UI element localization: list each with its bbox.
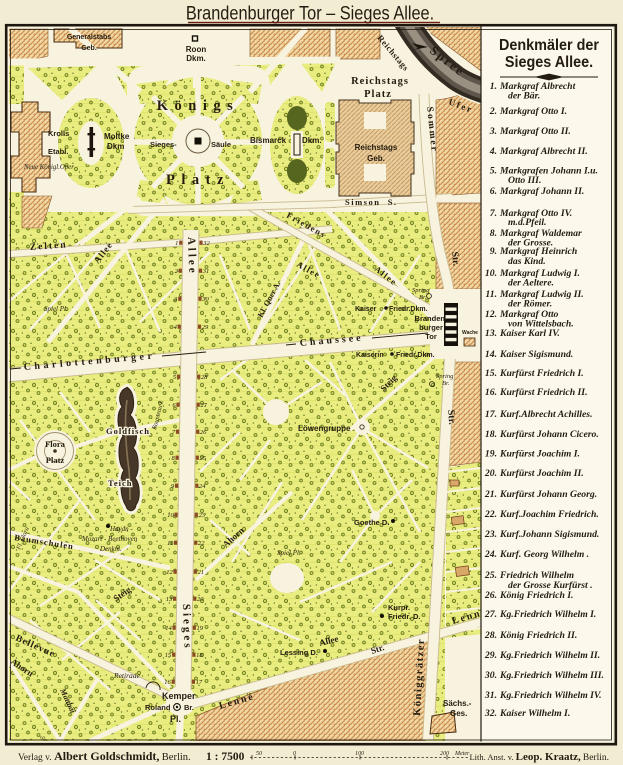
svg-text:Br.: Br. <box>184 703 194 712</box>
svg-text:22: 22 <box>198 540 205 547</box>
svg-text:15.: 15. <box>485 368 497 379</box>
svg-text:1 : 7500: 1 : 7500 <box>206 751 245 763</box>
svg-text:Moltke: Moltke <box>104 132 130 141</box>
svg-text:16.: 16. <box>485 387 497 398</box>
svg-text:11: 11 <box>167 540 173 547</box>
svg-text:23.: 23. <box>484 529 497 540</box>
svg-text:12.: 12. <box>485 309 497 320</box>
svg-text:Sieges Allee.: Sieges Allee. <box>505 54 593 72</box>
svg-text:Kurf.Joachim Friedrich.: Kurf.Joachim Friedrich. <box>499 509 599 520</box>
svg-text:Platz: Platz <box>166 172 230 188</box>
svg-text:27: 27 <box>200 402 207 409</box>
svg-text:der Römer.: der Römer. <box>508 299 552 310</box>
svg-text:7.: 7. <box>490 208 497 219</box>
svg-text:Lessing D.: Lessing D. <box>280 648 318 657</box>
svg-text:Friedr.Dkm.: Friedr.Dkm. <box>396 352 435 359</box>
svg-text:das Kind.: das Kind. <box>508 256 546 267</box>
svg-text:6.: 6. <box>490 186 497 197</box>
svg-text:16: 16 <box>164 679 171 686</box>
svg-text:Königs: Königs <box>157 98 240 114</box>
svg-text:4.: 4. <box>489 146 497 157</box>
svg-text:17.: 17. <box>485 409 497 420</box>
svg-text:26: 26 <box>200 429 207 436</box>
svg-text:15: 15 <box>165 652 172 659</box>
svg-text:Krolls: Krolls <box>48 129 69 138</box>
svg-text:Geb.: Geb. <box>81 45 97 52</box>
svg-text:König Friedrich II.: König Friedrich II. <box>499 630 577 641</box>
svg-text:Markgraf Johann II.: Markgraf Johann II. <box>499 186 584 197</box>
svg-text:Sieges: Sieges <box>180 604 194 651</box>
svg-text:29.: 29. <box>484 650 497 661</box>
svg-text:Spiel Pl.: Spiel Pl. <box>44 305 68 313</box>
svg-text:Brandenburger Tor – Sieges All: Brandenburger Tor – Sieges Allee. <box>186 2 434 23</box>
svg-text:Reichstags: Reichstags <box>355 143 398 152</box>
svg-text:32.: 32. <box>484 708 497 719</box>
svg-text:Otto III.: Otto III. <box>508 175 541 186</box>
svg-text:Friedr. D.: Friedr. D. <box>388 612 421 621</box>
svg-text:5.: 5. <box>490 166 497 177</box>
svg-text:1: 1 <box>175 240 178 247</box>
svg-text:28.: 28. <box>484 630 497 641</box>
svg-text:8.: 8. <box>490 228 497 239</box>
svg-text:31.: 31. <box>484 690 497 701</box>
svg-text:Str.: Str. <box>445 409 457 425</box>
svg-text:Kurfürst Johann Cicero.: Kurfürst Johann Cicero. <box>499 429 599 440</box>
svg-text:Kemper: Kemper <box>162 691 196 701</box>
svg-text:Kurpr.: Kurpr. <box>388 603 410 612</box>
svg-text:Goethe D.: Goethe D. <box>354 518 389 527</box>
svg-text:Br.: Br. <box>442 380 450 387</box>
svg-text:Goldfisch: Goldfisch <box>106 426 150 436</box>
svg-text:25.: 25. <box>484 570 497 581</box>
svg-text:Roland: Roland <box>145 703 171 712</box>
svg-text:Sieges-: Sieges- <box>150 140 177 149</box>
svg-text:Kaiser Karl IV.: Kaiser Karl IV. <box>499 328 560 339</box>
svg-text:Roon: Roon <box>186 45 207 54</box>
svg-text:Retirade: Retirade <box>113 671 140 680</box>
svg-text:Neue Königl.Oper: Neue Königl.Oper <box>23 164 74 171</box>
svg-text:Kaiser: Kaiser <box>355 306 377 313</box>
svg-text:12: 12 <box>166 569 173 576</box>
svg-text:Kurf.Albrecht Achilles.: Kurf.Albrecht Achilles. <box>499 409 593 420</box>
svg-text:18.: 18. <box>485 429 497 440</box>
svg-text:Lith. Anst. v. Leop. Kraatz, B: Lith. Anst. v. Leop. Kraatz, Berlin. <box>469 751 609 763</box>
svg-text:Platz: Platz <box>364 89 392 100</box>
svg-text:m.d.Pfeil.: m.d.Pfeil. <box>508 217 546 228</box>
svg-text:21.: 21. <box>484 489 497 500</box>
svg-text:Kurfürst Joachim II.: Kurfürst Joachim II. <box>499 468 584 479</box>
svg-text:11.: 11. <box>485 289 497 300</box>
svg-text:Markgraf Otto II.: Markgraf Otto II. <box>499 126 571 137</box>
svg-text:24.: 24. <box>484 549 497 560</box>
svg-text:26.: 26. <box>484 590 497 601</box>
svg-text:50: 50 <box>256 751 262 757</box>
svg-text:Meter: Meter <box>454 751 470 757</box>
svg-text:Str.: Str. <box>449 251 460 266</box>
svg-text:17: 17 <box>196 679 203 686</box>
svg-text:Kg.Friedrich Wilhelm II.: Kg.Friedrich Wilhelm II. <box>499 650 600 661</box>
svg-text:Mozart - Beethoven: Mozart - Beethoven <box>81 535 138 543</box>
svg-text:9.: 9. <box>490 246 497 257</box>
svg-text:31: 31 <box>202 268 210 275</box>
svg-text:Geb.: Geb. <box>367 154 385 163</box>
svg-text:32: 32 <box>202 240 210 247</box>
svg-text:20: 20 <box>197 596 204 603</box>
svg-text:13: 13 <box>166 596 173 603</box>
svg-text:10: 10 <box>167 512 174 519</box>
svg-text:23: 23 <box>199 512 206 519</box>
svg-text:3: 3 <box>173 296 178 303</box>
svg-text:2.: 2. <box>489 106 497 117</box>
svg-text:28: 28 <box>201 374 208 381</box>
svg-text:Denkm.: Denkm. <box>99 545 122 553</box>
svg-text:18: 18 <box>196 652 203 659</box>
svg-text:Pl.: Pl. <box>170 714 181 724</box>
svg-text:Dkm.: Dkm. <box>302 136 322 145</box>
svg-text:Markgraf Otto I.: Markgraf Otto I. <box>499 106 567 117</box>
svg-text:Platz: Platz <box>46 455 65 465</box>
svg-text:19.: 19. <box>485 449 497 460</box>
svg-text:13.: 13. <box>485 328 497 339</box>
svg-text:Flora: Flora <box>45 439 66 449</box>
svg-text:der Bär.: der Bär. <box>508 91 540 102</box>
svg-text:Kaiser Sigismund.: Kaiser Sigismund. <box>499 349 573 360</box>
svg-text:100: 100 <box>355 751 364 757</box>
svg-text:19: 19 <box>197 625 204 632</box>
svg-text:Tor: Tor <box>425 332 437 341</box>
svg-text:21: 21 <box>198 569 205 576</box>
svg-text:27.: 27. <box>484 609 497 620</box>
svg-text:Dkm.: Dkm. <box>186 54 206 63</box>
svg-text:Denkmäler der: Denkmäler der <box>499 37 599 55</box>
svg-text:Br.: Br. <box>419 294 427 301</box>
svg-text:24: 24 <box>199 483 206 490</box>
svg-text:Branden-: Branden- <box>415 314 448 323</box>
svg-text:Kurf. Georg Wilhelm .: Kurf. Georg Wilhelm . <box>499 549 589 560</box>
svg-text:Spiel Pl.: Spiel Pl. <box>277 549 301 557</box>
svg-text:Ges.: Ges. <box>450 709 467 718</box>
svg-text:1.: 1. <box>490 81 497 92</box>
svg-text:Kurf.Johann Sigismund.: Kurf.Johann Sigismund. <box>499 529 599 540</box>
svg-text:0: 0 <box>293 751 296 757</box>
svg-text:20.: 20. <box>484 468 497 479</box>
svg-text:Teich: Teich <box>108 478 133 488</box>
svg-text:Bismarck: Bismarck <box>250 136 287 145</box>
svg-text:Friedr.Dkm.: Friedr.Dkm. <box>389 306 428 313</box>
svg-text:Allee: Allee <box>185 237 198 276</box>
svg-text:König Friedrich I.: König Friedrich I. <box>499 590 573 601</box>
svg-text:Kurfürst Friedrich II.: Kurfürst Friedrich II. <box>499 387 588 398</box>
svg-text:der Aeltere.: der Aeltere. <box>508 278 554 289</box>
svg-text:Haydn -: Haydn - <box>109 525 133 533</box>
svg-text:14.: 14. <box>485 349 497 360</box>
svg-text:Kg.Friedrich Wilhelm I.: Kg.Friedrich Wilhelm I. <box>499 609 596 620</box>
svg-text:3.: 3. <box>489 126 497 137</box>
svg-text:Kurfürst Friedrich I.: Kurfürst Friedrich I. <box>499 368 584 379</box>
svg-text:Kurfürst Joachim I.: Kurfürst Joachim I. <box>499 449 580 460</box>
svg-text:30: 30 <box>201 296 209 303</box>
svg-text:Löwengruppe: Löwengruppe <box>298 424 351 433</box>
svg-text:Dkm: Dkm <box>107 142 124 151</box>
svg-text:Kaiserin: Kaiserin <box>356 352 384 359</box>
svg-text:Säule: Säule <box>211 140 231 149</box>
svg-text:Etabl.: Etabl. <box>48 147 68 156</box>
svg-text:14: 14 <box>165 625 172 632</box>
svg-text:29: 29 <box>202 324 209 331</box>
svg-text:burger: burger <box>419 323 443 332</box>
svg-text:25: 25 <box>200 455 207 462</box>
svg-text:22.: 22. <box>484 509 497 520</box>
svg-text:200: 200 <box>440 751 449 757</box>
svg-text:Wache: Wache <box>462 330 478 336</box>
svg-text:Kaiser Wilhelm I.: Kaiser Wilhelm I. <box>499 708 570 719</box>
svg-text:Generalstabs: Generalstabs <box>67 34 111 41</box>
svg-text:Reichstags: Reichstags <box>351 76 409 87</box>
svg-text:Spring: Spring <box>436 373 454 380</box>
svg-text:10.: 10. <box>485 268 497 279</box>
svg-text:Kg.Friedrich Wilhelm III.: Kg.Friedrich Wilhelm III. <box>499 670 604 681</box>
svg-text:Kurfürst Johann Georg.: Kurfürst Johann Georg. <box>499 489 597 500</box>
svg-text:Markgraf Albrecht II.: Markgraf Albrecht II. <box>499 146 588 157</box>
svg-text:Sächs.-: Sächs.- <box>443 699 472 708</box>
svg-text:30.: 30. <box>484 670 497 681</box>
svg-text:Simson S.: Simson S. <box>345 197 398 207</box>
svg-text:Kg.Friedrich Wilhelm IV.: Kg.Friedrich Wilhelm IV. <box>499 690 602 701</box>
svg-text:Spring: Spring <box>412 287 430 294</box>
